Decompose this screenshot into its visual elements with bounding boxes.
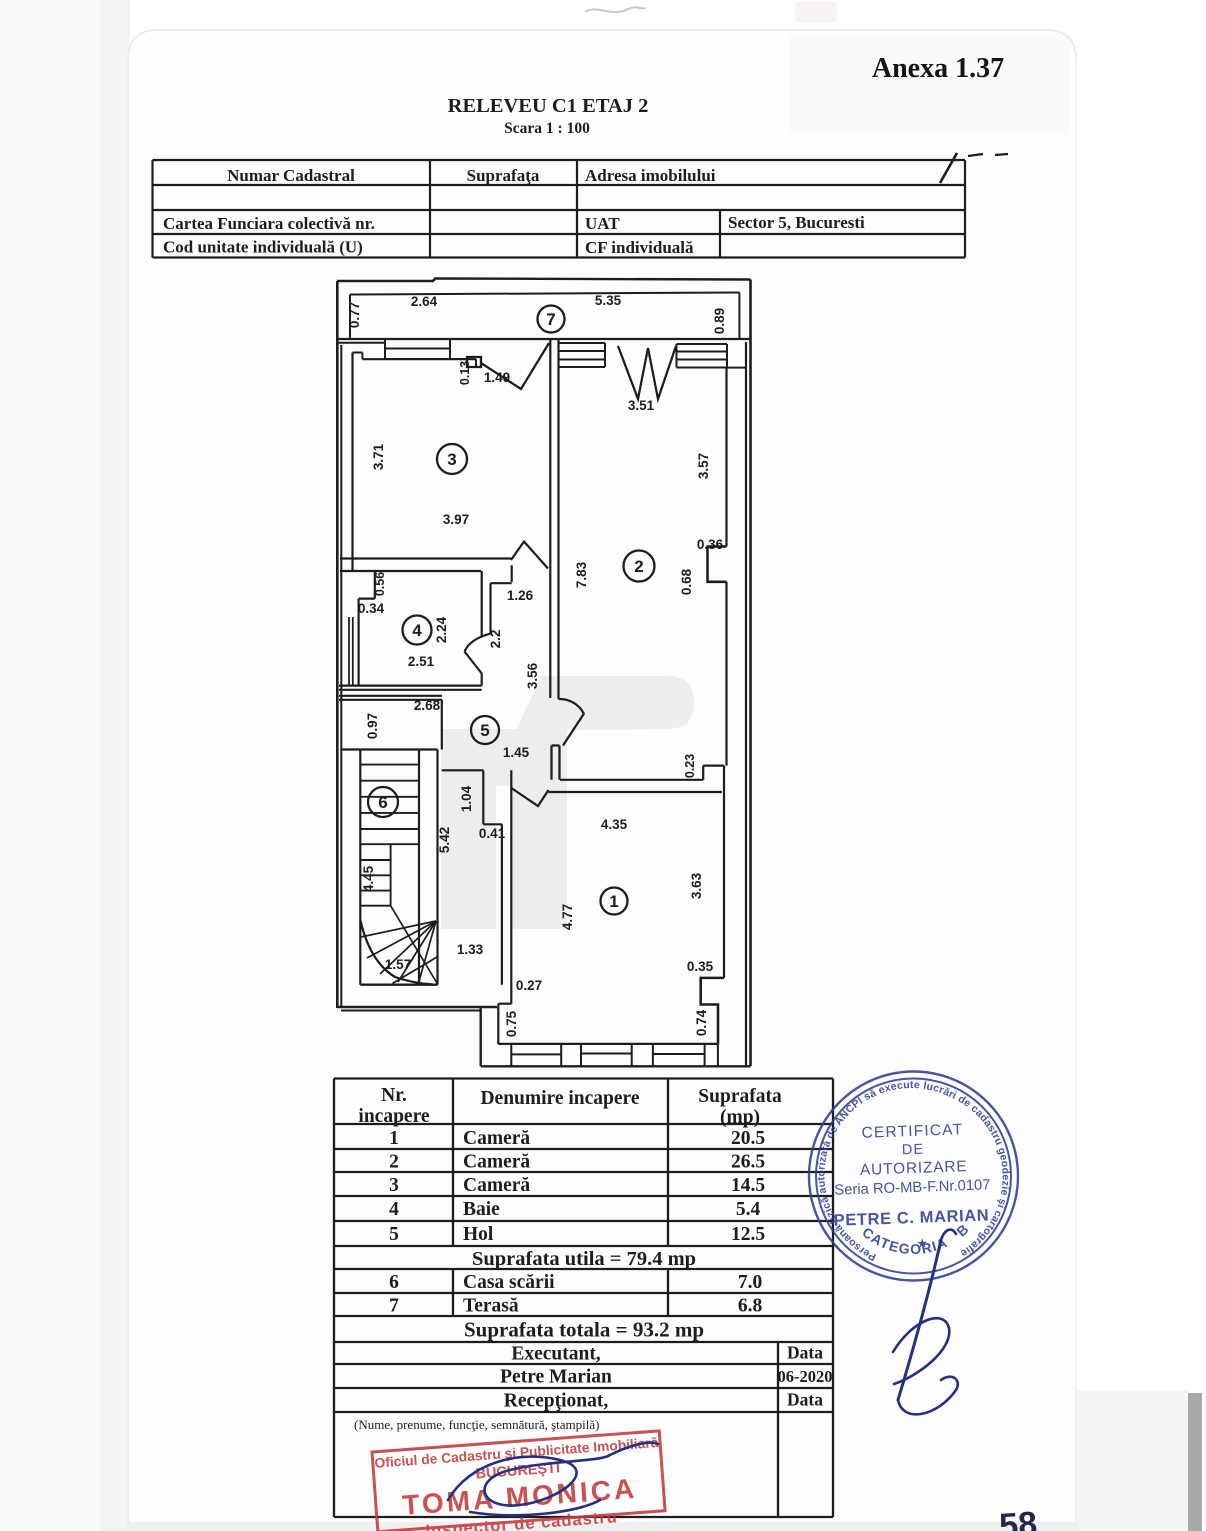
svg-text:incapere: incapere [358, 1106, 429, 1127]
svg-text:3.97: 3.97 [443, 512, 469, 527]
svg-text:14.5: 14.5 [731, 1175, 765, 1196]
svg-text:CERTIFICAT: CERTIFICAT [861, 1121, 963, 1142]
svg-text:DE: DE [902, 1142, 925, 1159]
svg-text:3: 3 [447, 450, 456, 469]
svg-text:0.34: 0.34 [358, 601, 385, 616]
svg-text:Recepţionat,: Recepţionat, [504, 1391, 609, 1412]
svg-text:06-2020: 06-2020 [778, 1367, 833, 1386]
svg-text:Suprafata utila = 79.4 mp: Suprafata utila = 79.4 mp [472, 1248, 696, 1270]
svg-text:Suprafaţa: Suprafaţa [467, 166, 540, 185]
svg-text:0.68: 0.68 [679, 568, 694, 595]
svg-text:1.45: 1.45 [503, 745, 530, 760]
svg-text:Data: Data [787, 1390, 823, 1410]
svg-text:0.74: 0.74 [694, 1009, 709, 1036]
svg-text:1: 1 [389, 1128, 399, 1149]
svg-text:Hol: Hol [463, 1224, 494, 1245]
svg-text:Petre Marian: Petre Marian [500, 1367, 612, 1388]
svg-text:5.42: 5.42 [437, 827, 452, 853]
svg-text:2: 2 [389, 1152, 399, 1173]
svg-text:0.75: 0.75 [504, 1010, 519, 1037]
svg-text:0.89: 0.89 [712, 308, 727, 334]
svg-text:2: 2 [634, 557, 643, 576]
svg-text:0.41: 0.41 [479, 826, 506, 841]
svg-text:2.68: 2.68 [414, 698, 441, 713]
svg-text:1.04: 1.04 [459, 785, 474, 812]
svg-text:0.56: 0.56 [373, 572, 387, 596]
svg-text:Cameră: Cameră [463, 1128, 530, 1149]
svg-text:3.63: 3.63 [689, 872, 704, 899]
svg-text:7: 7 [546, 310, 555, 329]
svg-text:CF individuală: CF individuală [585, 238, 694, 257]
svg-text:(mp): (mp) [720, 1107, 760, 1128]
svg-text:6.8: 6.8 [738, 1296, 763, 1317]
svg-text:3.56: 3.56 [525, 662, 540, 689]
svg-text:4: 4 [412, 621, 422, 640]
svg-text:1: 1 [609, 892, 618, 911]
svg-text:Cartea Funciara colectivă nr.: Cartea Funciara colectivă nr. [163, 214, 375, 233]
svg-text:5.4: 5.4 [736, 1199, 761, 1220]
svg-text:5.35: 5.35 [595, 293, 622, 308]
svg-text:Scara 1 : 100: Scara 1 : 100 [504, 120, 590, 137]
svg-text:Baie: Baie [463, 1199, 500, 1220]
svg-text:Casa scării: Casa scării [463, 1272, 555, 1293]
svg-text:1.57: 1.57 [385, 957, 411, 972]
svg-text:0.36: 0.36 [697, 537, 724, 552]
svg-text:0.77: 0.77 [347, 302, 362, 328]
svg-text:3: 3 [389, 1175, 399, 1196]
svg-text:Sector 5, Bucuresti: Sector 5, Bucuresti [728, 213, 865, 232]
svg-text:0.27: 0.27 [516, 978, 542, 993]
svg-text:Suprafata: Suprafata [698, 1086, 782, 1107]
svg-text:26.5: 26.5 [731, 1152, 765, 1173]
svg-text:1.26: 1.26 [507, 588, 534, 603]
svg-text:Executant,: Executant, [511, 1344, 600, 1365]
svg-text:3.51: 3.51 [628, 398, 655, 413]
svg-text:2.64: 2.64 [411, 294, 438, 309]
svg-text:Data: Data [787, 1343, 823, 1363]
svg-text:2.2: 2.2 [488, 630, 503, 649]
svg-text:20.5: 20.5 [731, 1128, 765, 1149]
svg-text:58: 58 [998, 1505, 1038, 1531]
svg-text:4.45: 4.45 [361, 865, 376, 892]
svg-text:(Nume, prenume, funcţie, semnă: (Nume, prenume, funcţie, semnătură, ştam… [354, 1417, 599, 1432]
svg-text:4: 4 [389, 1199, 399, 1220]
svg-text:2.24: 2.24 [434, 616, 449, 643]
svg-text:3.57: 3.57 [696, 453, 711, 479]
svg-text:Anexa 1.37: Anexa 1.37 [872, 53, 1004, 84]
svg-text:1.33: 1.33 [457, 942, 484, 957]
svg-text:0.35: 0.35 [687, 959, 714, 974]
svg-text:2.51: 2.51 [408, 654, 435, 669]
svg-text:0.97: 0.97 [365, 713, 380, 739]
svg-text:4.35: 4.35 [601, 817, 628, 832]
svg-text:7.83: 7.83 [574, 561, 589, 588]
svg-text:Cameră: Cameră [463, 1175, 530, 1196]
svg-text:Nr.: Nr. [381, 1085, 407, 1106]
svg-text:0.13: 0.13 [458, 361, 472, 385]
svg-text:0.23: 0.23 [683, 754, 697, 778]
svg-text:Numar Cadastral: Numar Cadastral [227, 166, 355, 185]
svg-text:6: 6 [378, 793, 387, 812]
svg-text:Terasă: Terasă [463, 1296, 519, 1317]
svg-text:Adresa imobilului: Adresa imobilului [585, 166, 716, 185]
svg-text:4.77: 4.77 [560, 904, 575, 930]
svg-text:Cameră: Cameră [463, 1152, 530, 1173]
svg-text:7.0: 7.0 [738, 1272, 762, 1293]
svg-text:UAT: UAT [585, 214, 620, 233]
svg-text:5: 5 [480, 721, 489, 740]
svg-text:5: 5 [389, 1224, 399, 1245]
svg-text:Suprafata totala = 93.2 mp: Suprafata totala = 93.2 mp [464, 1318, 704, 1342]
svg-text:7: 7 [389, 1296, 399, 1317]
svg-text:12.5: 12.5 [731, 1224, 765, 1245]
svg-text:Denumire incapere: Denumire incapere [480, 1088, 639, 1109]
svg-text:3.71: 3.71 [371, 443, 386, 470]
svg-text:1.49: 1.49 [484, 370, 510, 385]
svg-text:Cod unitate individuală (U): Cod unitate individuală (U) [163, 238, 363, 257]
svg-text:6: 6 [389, 1272, 399, 1293]
svg-text:RELEVEU C1 ETAJ 2: RELEVEU C1 ETAJ 2 [448, 95, 649, 117]
